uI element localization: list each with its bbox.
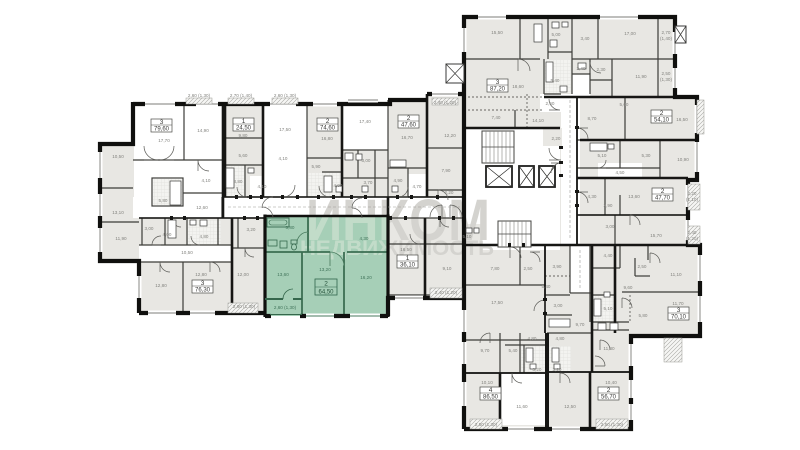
svg-text:7,80: 7,80 xyxy=(491,266,500,271)
svg-text:10,50: 10,50 xyxy=(181,250,193,255)
svg-text:16,80: 16,80 xyxy=(321,136,333,141)
svg-text:47,70: 47,70 xyxy=(655,196,671,202)
svg-text:86,50: 86,50 xyxy=(483,395,499,401)
svg-text:10,40: 10,40 xyxy=(605,380,617,385)
svg-text:4,80: 4,80 xyxy=(200,234,209,239)
svg-text:18,60: 18,60 xyxy=(512,84,524,89)
svg-text:5,00: 5,00 xyxy=(552,32,561,37)
svg-text:4,90: 4,90 xyxy=(334,183,343,188)
svg-text:3: 3 xyxy=(201,280,205,287)
svg-text:4,00: 4,00 xyxy=(163,232,172,237)
svg-text:5,40: 5,40 xyxy=(509,348,518,353)
svg-text:13,60: 13,60 xyxy=(628,194,640,199)
svg-text:11,10: 11,10 xyxy=(670,272,682,277)
svg-text:3,00: 3,00 xyxy=(362,158,371,163)
svg-text:16,50: 16,50 xyxy=(400,247,412,252)
svg-text:11,60: 11,60 xyxy=(516,404,528,409)
svg-text:3,20: 3,20 xyxy=(533,367,542,372)
svg-text:5,10: 5,10 xyxy=(604,306,613,311)
svg-text:3,70: 3,70 xyxy=(364,180,373,185)
svg-text:14,10: 14,10 xyxy=(532,118,544,123)
svg-text:4,30: 4,30 xyxy=(588,194,597,199)
svg-text:2: 2 xyxy=(660,110,664,117)
svg-text:(1,30): (1,30) xyxy=(660,77,672,82)
svg-text:2,90: 2,90 xyxy=(604,203,613,208)
svg-text:13,10: 13,10 xyxy=(112,210,124,215)
svg-text:2,60: 2,60 xyxy=(546,101,555,106)
svg-text:2,70 (1,40): 2,70 (1,40) xyxy=(230,93,253,98)
svg-text:2,60 (1,30): 2,60 (1,30) xyxy=(233,304,256,309)
svg-text:12,80: 12,80 xyxy=(155,283,167,288)
svg-text:9,80: 9,80 xyxy=(239,133,248,138)
svg-text:3,80: 3,80 xyxy=(234,179,243,184)
svg-text:2,50: 2,50 xyxy=(662,71,671,76)
svg-text:5,90: 5,90 xyxy=(312,164,321,169)
svg-text:2: 2 xyxy=(407,115,411,122)
svg-text:13,20: 13,20 xyxy=(319,267,331,272)
svg-text:5,80: 5,80 xyxy=(639,313,648,318)
svg-text:14,90: 14,90 xyxy=(197,128,209,133)
svg-text:4: 4 xyxy=(489,387,493,394)
svg-text:17,00: 17,00 xyxy=(624,31,636,36)
svg-text:4,10: 4,10 xyxy=(202,178,211,183)
svg-text:11,90: 11,90 xyxy=(635,74,647,79)
svg-text:5,60: 5,60 xyxy=(620,102,629,107)
svg-text:17,50: 17,50 xyxy=(491,300,503,305)
svg-text:24,50: 24,50 xyxy=(236,126,252,132)
svg-text:2,50: 2,50 xyxy=(638,264,647,269)
svg-text:8,70: 8,70 xyxy=(588,116,597,121)
svg-text:2: 2 xyxy=(661,188,665,195)
svg-text:5,80: 5,80 xyxy=(286,225,295,230)
svg-text:2,60 (1,30): 2,60 (1,30) xyxy=(274,93,297,98)
svg-text:2,30: 2,30 xyxy=(597,67,606,72)
svg-text:5,40: 5,40 xyxy=(542,284,551,289)
svg-text:2: 2 xyxy=(326,118,330,125)
svg-text:3,40: 3,40 xyxy=(581,36,590,41)
svg-text:4,40: 4,40 xyxy=(604,253,613,258)
svg-text:76,30: 76,30 xyxy=(195,288,211,294)
svg-text:9,70: 9,70 xyxy=(576,322,585,327)
svg-text:2,60 (1,30): 2,60 (1,30) xyxy=(274,305,297,310)
svg-text:3: 3 xyxy=(160,119,164,126)
svg-text:70,10: 70,10 xyxy=(671,315,687,321)
svg-text:9,10: 9,10 xyxy=(443,266,452,271)
svg-text:13,60: 13,60 xyxy=(277,272,289,277)
svg-text:3,90: 3,90 xyxy=(553,264,562,269)
svg-text:5,10: 5,10 xyxy=(463,234,472,239)
svg-text:64,50: 64,50 xyxy=(318,290,334,296)
svg-text:4,90: 4,90 xyxy=(394,178,403,183)
svg-text:3: 3 xyxy=(677,307,681,314)
svg-text:(1,10): (1,10) xyxy=(686,197,698,202)
svg-text:2,40 (1,20): 2,40 (1,20) xyxy=(435,290,458,295)
svg-text:2,50 (1,30): 2,50 (1,30) xyxy=(601,422,624,427)
svg-text:(1,20): (1,20) xyxy=(686,236,698,241)
svg-text:12,20: 12,20 xyxy=(444,133,456,138)
svg-text:11,80: 11,80 xyxy=(603,346,615,351)
svg-text:9,70: 9,70 xyxy=(481,348,490,353)
svg-text:2,20: 2,20 xyxy=(688,191,697,196)
svg-text:1: 1 xyxy=(242,118,246,125)
svg-text:5,60: 5,60 xyxy=(239,153,248,158)
svg-text:5,30: 5,30 xyxy=(642,153,651,158)
svg-text:(1,40): (1,40) xyxy=(660,36,672,41)
svg-text:16,50: 16,50 xyxy=(676,117,688,122)
svg-text:10,90: 10,90 xyxy=(677,157,689,162)
svg-text:3: 3 xyxy=(496,79,500,86)
svg-text:17,70: 17,70 xyxy=(158,138,170,143)
svg-text:12,60: 12,60 xyxy=(196,205,208,210)
svg-text:2: 2 xyxy=(607,387,611,394)
svg-text:2,40: 2,40 xyxy=(688,230,697,235)
svg-text:79,60: 79,60 xyxy=(154,127,170,133)
svg-text:2,70: 2,70 xyxy=(662,30,671,35)
svg-text:1: 1 xyxy=(406,255,410,262)
svg-text:2,50: 2,50 xyxy=(524,266,533,271)
svg-text:4,10: 4,10 xyxy=(258,184,267,189)
svg-text:3,00: 3,00 xyxy=(606,224,615,229)
svg-text:7,40: 7,40 xyxy=(492,115,501,120)
svg-text:4,80: 4,80 xyxy=(528,336,537,341)
svg-text:11,70: 11,70 xyxy=(672,301,684,306)
svg-text:15,70: 15,70 xyxy=(650,233,662,238)
svg-text:10,50: 10,50 xyxy=(112,154,124,159)
svg-text:5,10: 5,10 xyxy=(598,153,607,158)
svg-text:2,40: 2,40 xyxy=(577,66,586,71)
svg-text:16,20: 16,20 xyxy=(360,275,372,280)
svg-text:2,50 (1,30): 2,50 (1,30) xyxy=(475,422,498,427)
svg-text:56,70: 56,70 xyxy=(601,395,617,401)
svg-text:47,60: 47,60 xyxy=(401,123,417,129)
svg-text:5,80: 5,80 xyxy=(159,198,168,203)
svg-text:16,70: 16,70 xyxy=(401,135,413,140)
svg-text:2,40 (1,20): 2,40 (1,20) xyxy=(434,100,457,105)
svg-text:5,40: 5,40 xyxy=(551,78,560,83)
svg-text:15,50: 15,50 xyxy=(491,30,503,35)
svg-text:9,60: 9,60 xyxy=(624,285,633,290)
svg-text:7,90: 7,90 xyxy=(442,168,451,173)
svg-text:3,20: 3,20 xyxy=(553,367,562,372)
svg-text:2,20: 2,20 xyxy=(552,136,561,141)
svg-text:2,60 (1,30): 2,60 (1,30) xyxy=(188,93,211,98)
svg-text:12,80: 12,80 xyxy=(195,272,207,277)
svg-text:3,00: 3,00 xyxy=(145,226,154,231)
svg-text:11,90: 11,90 xyxy=(115,236,127,241)
svg-text:12,50: 12,50 xyxy=(564,404,576,409)
svg-text:12,00: 12,00 xyxy=(237,272,249,277)
svg-text:17,40: 17,40 xyxy=(359,119,371,124)
svg-text:2: 2 xyxy=(324,281,328,288)
svg-text:4,30: 4,30 xyxy=(360,236,369,241)
svg-text:4,80: 4,80 xyxy=(556,336,565,341)
svg-text:54,10: 54,10 xyxy=(654,118,670,124)
svg-text:3,20: 3,20 xyxy=(247,227,256,232)
svg-text:4,50: 4,50 xyxy=(616,170,625,175)
svg-text:4,10: 4,10 xyxy=(279,156,288,161)
svg-text:10,10: 10,10 xyxy=(481,380,493,385)
svg-text:17,50: 17,50 xyxy=(279,127,291,132)
svg-text:3,00: 3,00 xyxy=(554,303,563,308)
svg-text:36,10: 36,10 xyxy=(400,263,416,269)
svg-text:87,20: 87,20 xyxy=(490,87,506,93)
svg-text:2,20: 2,20 xyxy=(445,190,454,195)
svg-text:4,70: 4,70 xyxy=(413,184,422,189)
svg-text:74,60: 74,60 xyxy=(320,126,336,132)
